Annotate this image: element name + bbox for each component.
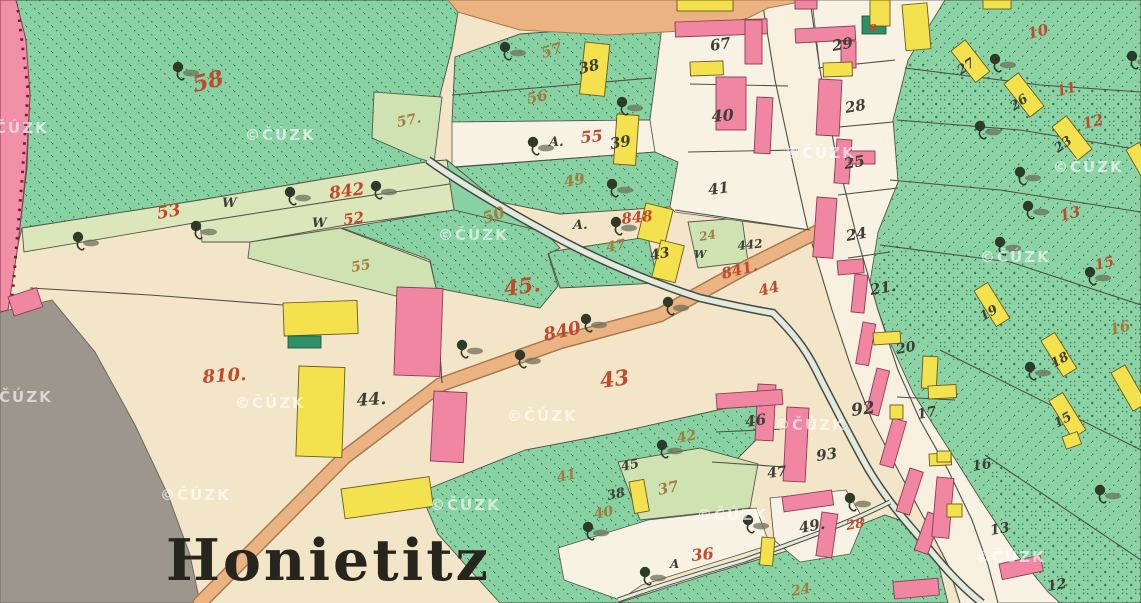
copyright-watermark: ©ČÚZK	[975, 547, 1046, 566]
parcel-label: 49	[563, 169, 587, 190]
copyright-watermark: ©ČÚZK	[507, 406, 578, 425]
copyright-watermark: ©ČÚZK	[980, 247, 1051, 266]
parcel-label: 47	[766, 463, 788, 482]
building-masonry	[893, 578, 939, 599]
building-masonry	[795, 0, 817, 9]
building-masonry	[816, 79, 842, 136]
garden-plot	[288, 336, 321, 348]
parcel-label: A.	[571, 218, 588, 233]
building-masonry	[813, 197, 837, 258]
copyright-watermark: ©ČÚZK	[785, 143, 856, 162]
building-wooden	[983, 0, 1011, 9]
parcel-label: 29	[830, 33, 855, 55]
parcel-label: 45.	[502, 271, 542, 301]
parcel-label: 40	[711, 105, 735, 126]
building-wooden	[760, 537, 775, 566]
parcel-label: 39	[609, 131, 633, 152]
copyright-watermark: ©ČÚZK	[0, 387, 53, 406]
building-wooden	[677, 0, 733, 11]
parcel-label: 8	[869, 22, 877, 35]
parcel-label: W	[222, 196, 238, 211]
parcel-label: W	[312, 216, 328, 231]
building-wooden	[947, 504, 962, 517]
building-masonry	[394, 287, 443, 377]
building-wooden	[921, 356, 938, 389]
parcel-label: 28	[843, 95, 868, 117]
building-wooden	[902, 3, 931, 51]
building-masonry	[837, 259, 864, 275]
parcel-label: 93	[815, 444, 838, 465]
copyright-watermark: ©ČÚZK	[438, 225, 509, 244]
copyright-watermark: ©ČÚZK	[245, 125, 316, 144]
building-wooden	[890, 405, 903, 419]
copyright-watermark: ©ČÚZK	[430, 495, 501, 514]
parcel-label: 47	[605, 237, 627, 256]
parcel-label: 13	[989, 520, 1011, 539]
parcel-label: W	[694, 248, 708, 261]
place-label: Honietitz	[166, 527, 491, 594]
cadastral-map[interactable]: 5853W842W525557.573856A.553967404149A.84…	[0, 0, 1141, 603]
map-viewport[interactable]: 5853W842W525557.573856A.553967404149A.84…	[0, 0, 1141, 603]
building-masonry	[745, 20, 762, 64]
parcel-label: 55	[580, 126, 604, 147]
parcel-label: A.	[547, 135, 564, 150]
building-masonry	[754, 97, 773, 154]
building-wooden	[928, 385, 957, 399]
parcel-label: 36	[690, 544, 714, 565]
parcel-label: 442	[737, 236, 763, 253]
building-wooden	[937, 451, 951, 462]
parcel-label: 92	[850, 398, 876, 421]
copyright-watermark: ©ČÚZK	[235, 393, 306, 412]
building-wooden	[690, 61, 723, 76]
copyright-watermark: ©ČÚZK	[1053, 157, 1124, 176]
parcel-label: 43	[649, 245, 671, 264]
copyright-watermark: ©ČÚZK	[160, 485, 231, 504]
parcel-label: 46	[744, 410, 768, 431]
building-masonry	[430, 391, 467, 463]
copyright-watermark: ©ČÚZK	[775, 415, 846, 434]
parcel-label: A	[669, 557, 679, 571]
parcel-label: 67	[709, 33, 733, 54]
parcel-label: 24	[844, 224, 869, 246]
parcel-label: 44.	[356, 389, 387, 411]
parcel-label: 12	[1046, 576, 1068, 595]
building-wooden	[283, 300, 358, 336]
building-wooden	[823, 62, 852, 77]
parcel-label: 43	[598, 364, 630, 393]
parcel-label: 16	[971, 456, 993, 475]
parcel-label: 848	[621, 207, 655, 228]
parcel-label: 17	[916, 404, 938, 423]
copyright-watermark: ©ČÚZK	[697, 505, 768, 524]
parcel-label: 53	[155, 200, 182, 224]
copyright-watermark: ©ČÚZK	[0, 118, 49, 137]
parcel-label: 55	[350, 257, 372, 276]
parcel-label: 41	[707, 178, 730, 199]
parcel-label: 810.	[201, 364, 247, 388]
parcel-label: 52	[342, 208, 365, 229]
